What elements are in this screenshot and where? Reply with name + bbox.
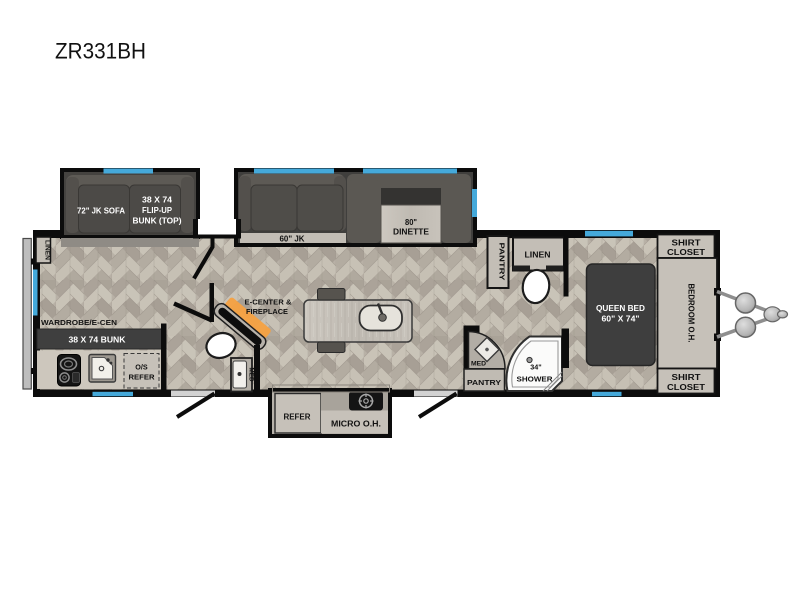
svg-text:PANTRY: PANTRY	[467, 378, 501, 387]
svg-text:QUEEN BED: QUEEN BED	[596, 303, 645, 313]
svg-text:MICRO O.H.: MICRO O.H.	[331, 420, 381, 429]
svg-text:34": 34"	[530, 363, 541, 372]
svg-text:80": 80"	[405, 218, 417, 227]
svg-text:SHIRT: SHIRT	[672, 239, 701, 248]
svg-text:CLOSET: CLOSET	[667, 383, 705, 392]
svg-text:PANTRY: PANTRY	[498, 243, 505, 281]
svg-text:60" JK: 60" JK	[280, 234, 306, 244]
svg-text:BEDROOM O.H.: BEDROOM O.H.	[687, 284, 696, 343]
svg-text:FIREPLACE: FIREPLACE	[246, 307, 288, 316]
svg-text:DINETTE: DINETTE	[393, 228, 430, 237]
svg-text:REFER: REFER	[284, 413, 311, 422]
svg-text:LINEN: LINEN	[525, 251, 551, 260]
svg-text:BUNK (TOP): BUNK (TOP)	[133, 217, 182, 226]
svg-text:SHIRT: SHIRT	[672, 373, 701, 382]
svg-text:ZR331BH: ZR331BH	[55, 39, 146, 64]
svg-text:E-CENTER &: E-CENTER &	[245, 298, 293, 307]
svg-text:60" X 74": 60" X 74"	[602, 314, 640, 324]
svg-text:72" JK SOFA: 72" JK SOFA	[77, 207, 125, 216]
svg-text:WARDROBE/E-CEN: WARDROBE/E-CEN	[41, 318, 117, 327]
svg-text:O/S: O/S	[135, 363, 148, 372]
svg-text:FLIP-UP: FLIP-UP	[142, 206, 173, 215]
svg-text:MED: MED	[471, 361, 486, 368]
svg-text:38 X 74 BUNK: 38 X 74 BUNK	[69, 336, 126, 345]
svg-text:LINEN: LINEN	[44, 240, 50, 260]
svg-text:REFER: REFER	[129, 373, 156, 382]
svg-text:SHOWER: SHOWER	[517, 375, 554, 384]
svg-text:38 X 74: 38 X 74	[142, 196, 173, 205]
svg-text:CLOSET: CLOSET	[667, 248, 705, 257]
svg-text:MED: MED	[247, 368, 254, 383]
